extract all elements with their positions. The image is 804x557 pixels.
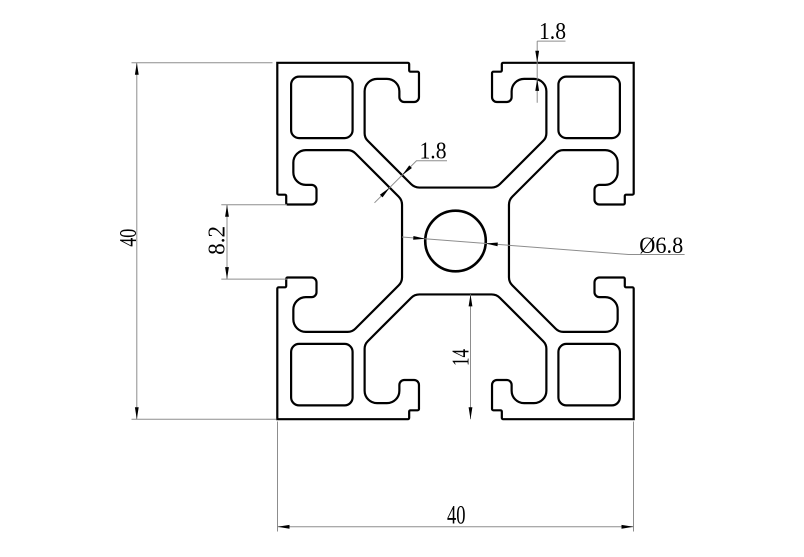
svg-text:40: 40 (447, 501, 466, 530)
svg-text:1.8: 1.8 (539, 19, 566, 45)
svg-text:Ø6.8: Ø6.8 (639, 233, 683, 258)
svg-text:1.8: 1.8 (420, 139, 447, 165)
svg-text:14: 14 (449, 349, 475, 366)
svg-text:8.2: 8.2 (205, 226, 231, 255)
svg-text:40: 40 (116, 229, 142, 247)
